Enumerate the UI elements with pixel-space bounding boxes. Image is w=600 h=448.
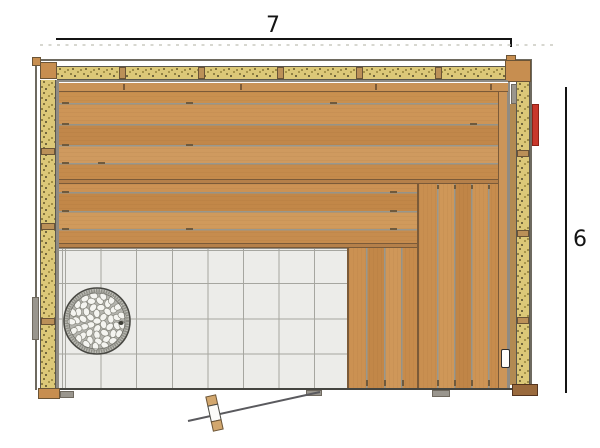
plank-joint-mark	[62, 191, 69, 193]
plank-joint-mark	[366, 380, 368, 386]
plank-joint-mark	[62, 102, 69, 104]
plank-joint-mark	[186, 228, 193, 230]
plank-joint-mark	[488, 380, 490, 386]
glass-door-open	[188, 392, 320, 431]
plank-joint-mark	[402, 380, 404, 386]
plank-joint-mark	[62, 210, 69, 212]
plank-joint-mark	[330, 102, 337, 104]
plank-joint-mark	[186, 102, 193, 104]
plank-joint-mark	[375, 84, 377, 90]
plank-joint-mark	[471, 380, 473, 386]
plank-joint-mark	[488, 185, 490, 189]
heater-sensor-mark	[118, 321, 123, 325]
sauna-floor-plan: 7 6	[0, 0, 600, 448]
plank-joint-mark	[384, 380, 386, 386]
plank-joint-mark	[471, 185, 473, 189]
plank-joint-mark	[62, 162, 69, 164]
plank-joint-mark	[186, 144, 193, 146]
plank-joint-mark	[62, 144, 69, 146]
plank-joint-mark	[454, 380, 456, 386]
plan-overlay	[0, 0, 600, 448]
plank-joint-mark	[98, 162, 105, 164]
plank-joint-mark	[62, 228, 69, 230]
plank-joint-mark	[123, 84, 125, 90]
plank-joint-mark	[390, 228, 397, 230]
plank-joint-mark	[490, 84, 492, 90]
plank-joint-mark	[390, 191, 397, 193]
sauna-heater	[64, 288, 130, 354]
plank-joint-mark	[437, 380, 439, 386]
plank-joint-mark	[470, 123, 477, 125]
plank-joint-mark	[62, 123, 69, 125]
plank-joint-mark	[240, 84, 242, 90]
plank-joint-mark	[437, 185, 439, 189]
plank-joint-mark	[390, 210, 397, 212]
plank-joint-mark	[454, 185, 456, 189]
